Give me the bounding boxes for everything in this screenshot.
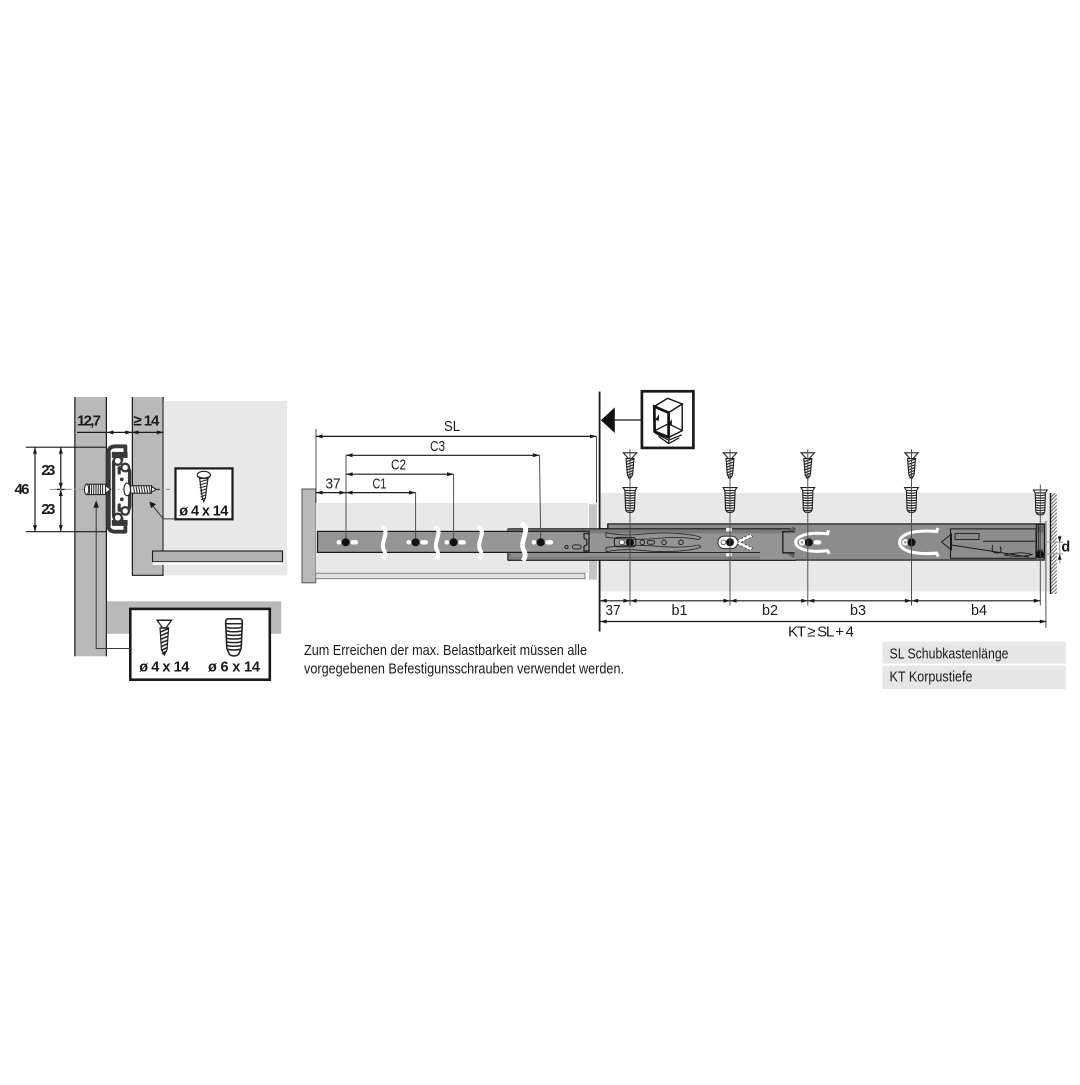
svg-text:SL: SL bbox=[444, 418, 460, 435]
svg-text:C1: C1 bbox=[373, 475, 387, 492]
svg-text:C2: C2 bbox=[391, 457, 406, 474]
svg-text:Zum Erreichen der max. Belastb: Zum Erreichen der max. Belastbarkeit müs… bbox=[304, 642, 587, 659]
svg-text:≥ 14: ≥ 14 bbox=[133, 413, 160, 430]
svg-text:ø 4 x 14: ø 4 x 14 bbox=[179, 504, 228, 520]
svg-text:ø 4 x 14: ø 4 x 14 bbox=[139, 659, 189, 675]
svg-text:SL Schubkastenlänge: SL Schubkastenlänge bbox=[890, 646, 1009, 663]
svg-text:37: 37 bbox=[606, 602, 621, 619]
svg-text:d: d bbox=[1061, 540, 1070, 556]
svg-text:KT Korpustiefe: KT Korpustiefe bbox=[890, 668, 973, 685]
svg-text:b2: b2 bbox=[762, 602, 778, 619]
svg-text:vorgegebenen Befestigunsschrau: vorgegebenen Befestigunsschrauben verwen… bbox=[304, 661, 624, 678]
svg-text:12,7: 12,7 bbox=[77, 413, 101, 430]
svg-text:23: 23 bbox=[41, 501, 55, 518]
svg-text:C3: C3 bbox=[430, 438, 445, 455]
svg-text:b4: b4 bbox=[971, 602, 987, 619]
svg-text:b3: b3 bbox=[850, 602, 866, 619]
svg-text:b1: b1 bbox=[672, 602, 688, 619]
svg-text:37: 37 bbox=[326, 475, 341, 492]
svg-text:46: 46 bbox=[15, 481, 30, 498]
svg-text:ø 6 x 14: ø 6 x 14 bbox=[208, 659, 260, 675]
svg-text:23: 23 bbox=[41, 462, 55, 479]
svg-text:KT ≥ SL + 4: KT ≥ SL + 4 bbox=[788, 623, 854, 640]
